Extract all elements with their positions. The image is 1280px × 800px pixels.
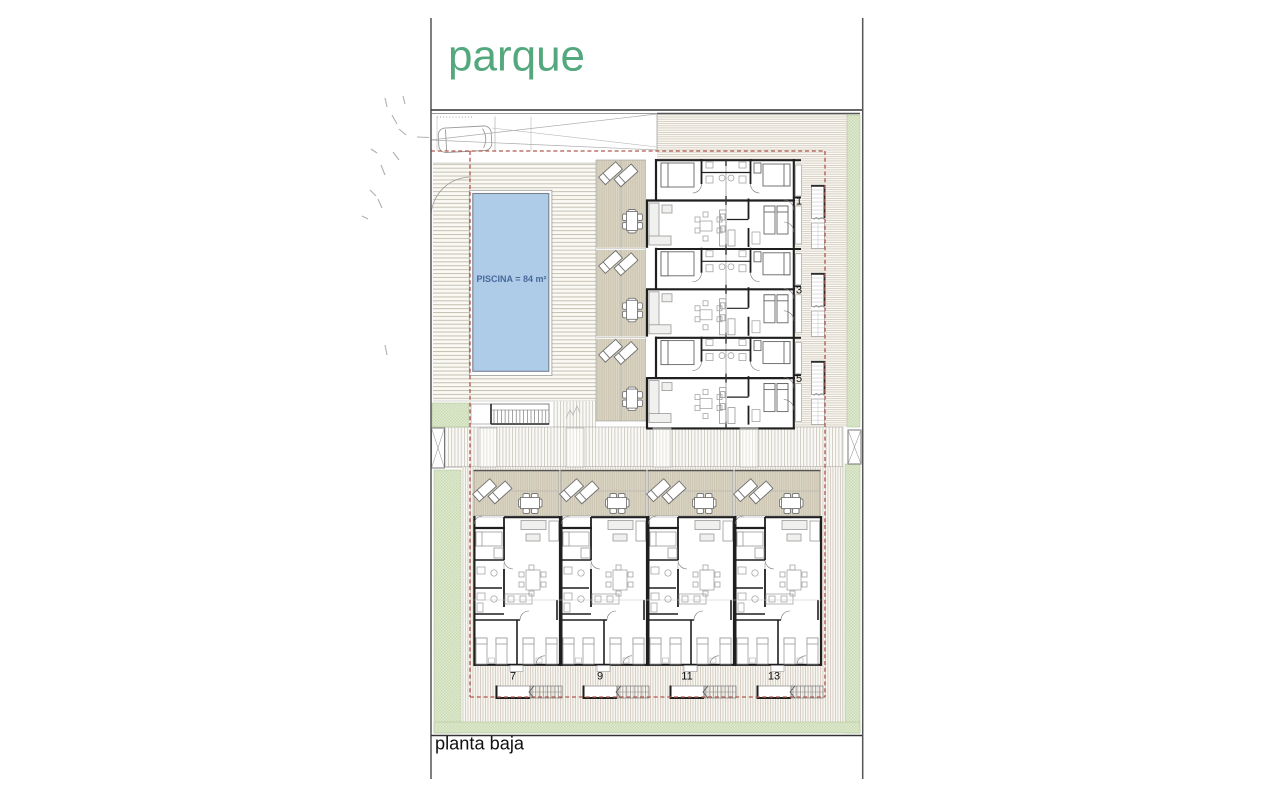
svg-text:7: 7 xyxy=(510,671,516,683)
svg-text:13: 13 xyxy=(768,671,780,683)
svg-text:9: 9 xyxy=(597,671,603,683)
svg-text:parque: parque xyxy=(448,32,585,81)
svg-text:5: 5 xyxy=(796,373,802,385)
svg-text:PISCINA = 84 m²: PISCINA = 84 m² xyxy=(477,274,547,284)
svg-text:11: 11 xyxy=(681,671,692,683)
svg-text:3: 3 xyxy=(796,284,802,296)
svg-text:planta baja: planta baja xyxy=(435,734,525,754)
svg-text:1: 1 xyxy=(796,196,802,208)
